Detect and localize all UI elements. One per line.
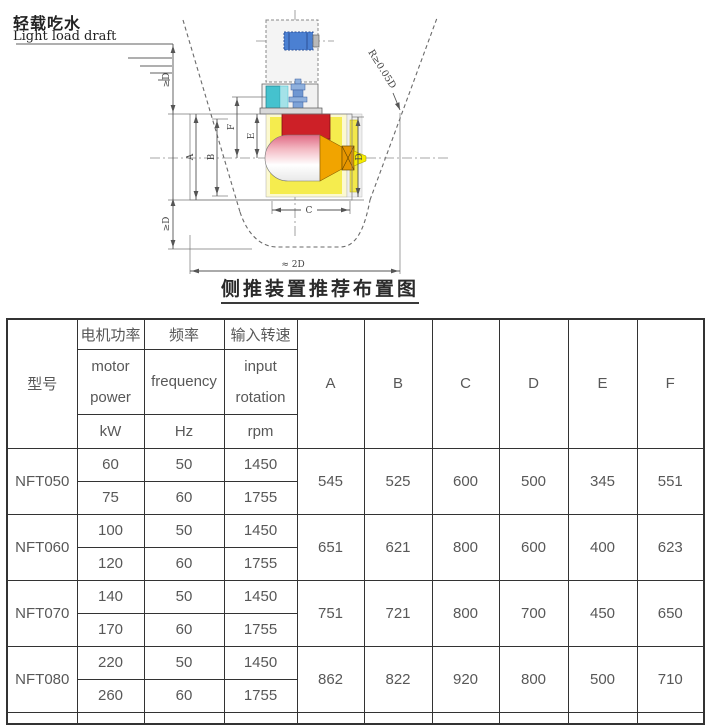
cell-dim-c: 800 — [432, 580, 499, 646]
header-motor-power-cn: 电机功率 — [77, 319, 144, 349]
header-frequency-cn: 频率 — [144, 319, 224, 349]
header-unit-kw: kW — [77, 414, 144, 448]
cell-frequency: 60 — [144, 547, 224, 580]
cell-dim-b: 525 — [364, 448, 432, 514]
dim-f-label: F — [227, 124, 237, 130]
waterline — [16, 44, 173, 80]
dim-2d-label: ≈ 2D — [281, 260, 304, 270]
cell-dim-f: 551 — [637, 448, 704, 514]
cell-dim-c: 920 — [432, 646, 499, 712]
cell-dim-b: 621 — [364, 514, 432, 580]
cell-dim-f: 710 — [637, 646, 704, 712]
header-dim-b: B — [364, 319, 432, 448]
cell-rpm: 1450 — [224, 580, 297, 613]
cell-power: 75 — [77, 481, 144, 514]
layout-drawing: ≥D ≥D A B F E D C ≈ 2D R≥0.05D — [0, 0, 707, 316]
spec-table: 型号 电机功率 频率 输入转速 A B C D E F motor power … — [6, 318, 705, 725]
header-dim-d: D — [499, 319, 568, 448]
table-row: NFT050 60 50 1450 545 525 600 500 345 55… — [7, 448, 704, 481]
cell-power: 140 — [77, 580, 144, 613]
cell-power: 170 — [77, 613, 144, 646]
cell-dim-d: 800 — [499, 646, 568, 712]
header-row-cn: 型号 电机功率 频率 输入转速 A B C D E F — [7, 319, 704, 349]
dim-a-label: A — [186, 153, 196, 161]
cell-model: NFT070 — [7, 580, 77, 646]
cell-dim-d: 600 — [499, 514, 568, 580]
table-row: NFT080 220 50 1450 862 822 920 800 500 7… — [7, 646, 704, 679]
cell-dim-f: 650 — [637, 580, 704, 646]
cell-frequency: 60 — [144, 481, 224, 514]
cell-model: NFT060 — [7, 514, 77, 580]
cell-rpm: 1450 — [224, 646, 297, 679]
cell-dim-c: 600 — [432, 448, 499, 514]
cell-dim-e: 345 — [568, 448, 637, 514]
cell-dim-b: 822 — [364, 646, 432, 712]
header-model: 型号 — [7, 319, 77, 448]
cell-rpm: 1755 — [224, 547, 297, 580]
dim-c-label: C — [306, 206, 313, 216]
cell-rpm: 1450 — [224, 514, 297, 547]
header-input-rotation-en: input rotation — [224, 349, 297, 414]
cell-frequency: 50 — [144, 448, 224, 481]
cell-dim-f: 623 — [637, 514, 704, 580]
cell-model: NFT050 — [7, 448, 77, 514]
dim-ge-d-upper: ≥D — [162, 73, 172, 88]
header-unit-hz: Hz — [144, 414, 224, 448]
cell-rpm: 1450 — [224, 448, 297, 481]
cell-power: 60 — [77, 448, 144, 481]
cell-dim-e: 400 — [568, 514, 637, 580]
cell-power: 260 — [77, 679, 144, 712]
table-row: NFT070 140 50 1450 751 721 800 700 450 6… — [7, 580, 704, 613]
header-dim-f: F — [637, 319, 704, 448]
header-frequency-en: frequency — [144, 349, 224, 414]
dim-d-label: D — [355, 153, 365, 160]
cell-power: 220 — [77, 646, 144, 679]
cell-rpm: 1755 — [224, 613, 297, 646]
cell-dim-a: 545 — [297, 448, 364, 514]
cell-frequency: 60 — [144, 679, 224, 712]
dim-e-label: E — [247, 133, 257, 140]
table-row: NFT060 100 50 1450 651 621 800 600 400 6… — [7, 514, 704, 547]
cell-dim-b: 721 — [364, 580, 432, 646]
header-motor-power-en: motor power — [77, 349, 144, 414]
gearbox — [260, 79, 322, 114]
cell-dim-e: 500 — [568, 646, 637, 712]
cell-frequency: 50 — [144, 646, 224, 679]
electric-motor — [284, 32, 319, 50]
header-unit-rpm: rpm — [224, 414, 297, 448]
header-input-rotation-cn: 输入转速 — [224, 319, 297, 349]
cell-power: 120 — [77, 547, 144, 580]
dim-ge-d-lower: ≥D — [162, 217, 172, 232]
header-dim-c: C — [432, 319, 499, 448]
cell-dim-c: 800 — [432, 514, 499, 580]
cell-rpm: 1755 — [224, 679, 297, 712]
cell-frequency: 50 — [144, 514, 224, 547]
cell-dim-a: 651 — [297, 514, 364, 580]
cell-power: 100 — [77, 514, 144, 547]
page: { "diagram": { "labels": { "draft_cn": "… — [0, 0, 707, 714]
cell-frequency: 60 — [144, 613, 224, 646]
header-dim-e: E — [568, 319, 637, 448]
cell-dim-a: 862 — [297, 646, 364, 712]
dim-radius-label: R≥0.05D — [365, 48, 398, 91]
cell-dim-e: 450 — [568, 580, 637, 646]
cell-rpm: 1755 — [224, 481, 297, 514]
motor-envelope — [266, 20, 318, 82]
thruster-layout-diagram: ≥D ≥D A B F E D C ≈ 2D R≥0.05D 轻载吃水 Ligh… — [0, 0, 707, 316]
cell-dim-d: 700 — [499, 580, 568, 646]
cell-frequency: 50 — [144, 580, 224, 613]
light-load-draft-en: Light load draft — [13, 29, 116, 44]
cell-model: NFT080 — [7, 646, 77, 712]
diagram-caption: 侧推装置推荐布置图 — [221, 274, 419, 304]
cell-dim-a: 751 — [297, 580, 364, 646]
dim-b-label: B — [207, 153, 217, 160]
cell-dim-d: 500 — [499, 448, 568, 514]
header-dim-a: A — [297, 319, 364, 448]
